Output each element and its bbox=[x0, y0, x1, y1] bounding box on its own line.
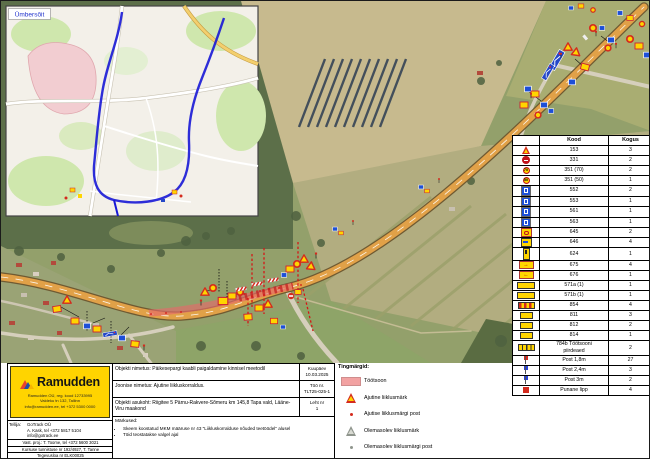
panel-icon bbox=[517, 292, 535, 299]
stripe-ry-icon bbox=[518, 302, 535, 309]
sign-table-row: 6241 bbox=[513, 248, 650, 261]
sign-icon-cell bbox=[513, 248, 540, 261]
sign-code: 563 bbox=[540, 217, 609, 228]
sign-table-row: Post 3m2 bbox=[513, 376, 650, 386]
sign-qty: 4 bbox=[609, 238, 650, 248]
blue-icon bbox=[521, 207, 531, 217]
sign-code: Punane lipp bbox=[540, 386, 609, 396]
sign-icon-header bbox=[513, 136, 540, 146]
sign-qty: 1 bbox=[609, 217, 650, 228]
company-address-line: info@ramudden.ee, tel +372 5300 0000 bbox=[25, 404, 96, 409]
sign-qty: 2 bbox=[609, 228, 650, 238]
sign-icon-cell bbox=[513, 207, 540, 218]
sign-code: 561 bbox=[540, 207, 609, 218]
company-address: Ramudden OÜ, reg. kood 12733995Valdeku t… bbox=[25, 393, 96, 409]
notes-list: Skeem koostatud MKM määruse nr 43 "Liikl… bbox=[123, 426, 332, 438]
sign-icon-cell bbox=[513, 186, 540, 197]
sign-qty: 3 bbox=[609, 311, 650, 321]
notes-cell: Märkused: Skeem koostatud MKM määruse nr… bbox=[113, 417, 334, 458]
sign-table-row: 5522 bbox=[513, 186, 650, 197]
existing-post-swatch bbox=[350, 446, 353, 449]
sign-code: 675 bbox=[540, 261, 609, 271]
sign-code: 646 bbox=[540, 238, 609, 248]
ring-icon: 70 bbox=[523, 167, 530, 174]
sign-table-row: 8544 bbox=[513, 301, 650, 311]
sign-code: 645 bbox=[540, 228, 609, 238]
sign-icon-cell bbox=[513, 331, 540, 341]
blue-icon bbox=[521, 197, 531, 207]
sign-qty: 1 bbox=[609, 248, 650, 261]
ta-plan-sheet: Ümbersõit Kood Kogus 1533331270351 (70)2… bbox=[0, 0, 650, 459]
al-icon: ← bbox=[519, 271, 534, 279]
sign-table: Kood Kogus 1533331270351 (70)250351 (50)… bbox=[512, 135, 650, 396]
note-item: Töid teostatakse valgel ajal bbox=[123, 432, 332, 438]
sign-qty: 4 bbox=[609, 386, 650, 396]
sign-code: 351 (70) bbox=[540, 166, 609, 176]
yc-icon bbox=[521, 228, 532, 237]
work-no-value: TLT25-025-1 bbox=[300, 389, 334, 395]
work-no-cell: Töö nr. TLT25-025-1 bbox=[299, 381, 334, 398]
sign-icon-cell bbox=[513, 321, 540, 331]
legend-label: Olemasolev liiklusmärk bbox=[364, 428, 419, 434]
client-lines: GoTrack OÜA. Kask, tel +372 5817 5104inf… bbox=[27, 421, 113, 439]
blue-icon bbox=[521, 186, 531, 196]
sign-table-row: 6464 bbox=[513, 238, 650, 248]
sign-qty: 1 bbox=[609, 176, 650, 186]
sign-qty: 1 bbox=[609, 291, 650, 301]
legend-item: Ajutise liiklusmärgi post bbox=[338, 406, 533, 423]
plate-icon bbox=[520, 312, 533, 319]
sign-table-row: Post 1,8m27 bbox=[513, 356, 650, 366]
sign-code: 552 bbox=[540, 186, 609, 197]
date-value: 10.03.2025 bbox=[300, 372, 334, 378]
temp-post-swatch bbox=[350, 413, 353, 416]
sign-table-row: 70351 (70)2 bbox=[513, 166, 650, 176]
sign-table-row: 50351 (50)1 bbox=[513, 176, 650, 186]
sign-qty: 2 bbox=[609, 166, 650, 176]
legend-label: Ajutise liiklusmärgi post bbox=[364, 411, 420, 417]
sign-code: 814 bbox=[540, 331, 609, 341]
sign-icon-cell bbox=[513, 281, 540, 291]
license-line: Tegevusloa nr ELK00025 bbox=[8, 452, 113, 459]
client-line: info@gotrack.ee bbox=[27, 433, 113, 439]
sign-table-row: →6754 bbox=[513, 261, 650, 271]
legend-label: Töötsoon bbox=[364, 378, 386, 384]
noentry-icon bbox=[522, 156, 530, 164]
sign-icon-cell: 70 bbox=[513, 166, 540, 176]
date-cell: Kuupäev 10.03.2025 bbox=[299, 364, 334, 381]
legend-items: TöötsoonAjutine liiklusmärkAjutise liikl… bbox=[338, 373, 533, 456]
sign-qty: 2 bbox=[609, 376, 650, 386]
sign-code: 571b (1) bbox=[540, 291, 609, 301]
yr-icon bbox=[521, 238, 532, 247]
sign-qty: 2 bbox=[609, 321, 650, 331]
legend-swatch-cell bbox=[338, 426, 364, 436]
sign-qty: 4 bbox=[609, 261, 650, 271]
sign-icon-cell bbox=[513, 196, 540, 207]
legend-swatch-cell bbox=[338, 377, 364, 386]
plate-icon bbox=[520, 332, 533, 339]
sign-table-row: Post 2,4m3 bbox=[513, 366, 650, 376]
legend-label: Ajutine liiklusmärk bbox=[364, 395, 407, 401]
sign-table-row: 8122 bbox=[513, 321, 650, 331]
sheet-no-value: 1 bbox=[300, 406, 334, 412]
sign-code: 812 bbox=[540, 321, 609, 331]
location-cell: Objekti asukoht: Riigitee 5 Pärnu-Rakver… bbox=[113, 398, 299, 417]
sheet-no-cell: Leht nr 1 bbox=[299, 398, 334, 417]
sign-table-row: 1533 bbox=[513, 146, 650, 156]
sign-qty: 2 bbox=[609, 156, 650, 166]
sign-icon-cell bbox=[513, 291, 540, 301]
sign-code: Post 1,8m bbox=[540, 356, 609, 366]
stripe-yb-icon bbox=[518, 344, 535, 351]
sign-table-row: Punane lipp4 bbox=[513, 386, 650, 396]
legend-swatch-cell bbox=[338, 393, 364, 403]
sign-code: 624 bbox=[540, 248, 609, 261]
legend-swatch-cell bbox=[338, 446, 364, 449]
sign-code: Post 2,4m bbox=[540, 366, 609, 376]
sign-icon-cell: 50 bbox=[513, 176, 540, 186]
drawing-name-cell: Joonise nimetus: Ajutine liikluskorraldu… bbox=[113, 381, 299, 398]
sign-qty: 2 bbox=[609, 341, 650, 356]
sign-qty: 27 bbox=[609, 356, 650, 366]
sign-qty: 3 bbox=[609, 146, 650, 156]
sign-qty: 1 bbox=[609, 331, 650, 341]
sign-table-row: 8141 bbox=[513, 331, 650, 341]
sign-icon-cell: ← bbox=[513, 271, 540, 281]
sign-code: 553 bbox=[540, 196, 609, 207]
sign-qty: 4 bbox=[609, 301, 650, 311]
workzone-swatch bbox=[341, 377, 361, 386]
tall-icon bbox=[523, 248, 530, 260]
sign-qty: 1 bbox=[609, 207, 650, 218]
panel-icon bbox=[517, 282, 535, 289]
client-row: Tellija: GoTrack OÜA. Kask, tel +372 581… bbox=[8, 420, 113, 439]
sign-table-row: 571a (1)1 bbox=[513, 281, 650, 291]
sign-qty: 3 bbox=[609, 366, 650, 376]
sign-qty: 1 bbox=[609, 196, 650, 207]
sign-table-body: 1533331270351 (70)250351 (50)15522553156… bbox=[513, 146, 650, 396]
ramudden-logo-box: Ramudden Ramudden OÜ, reg. kood 12733995… bbox=[10, 366, 110, 418]
client-label: Tellija: bbox=[8, 421, 27, 439]
inset-detour-label: Ümbersõit bbox=[15, 11, 45, 19]
sign-icon-cell bbox=[513, 146, 540, 156]
legend-item: Olemasolev liiklusmärk bbox=[338, 423, 533, 440]
sign-icon-cell bbox=[513, 238, 540, 248]
ramudden-logo: Ramudden bbox=[20, 375, 100, 389]
sign-table-header-row: Kood Kogus bbox=[513, 136, 650, 146]
sign-code-header: Kood bbox=[540, 136, 609, 146]
inset-map: Ümbersõit bbox=[6, 6, 266, 216]
legend-item: Töötsoon bbox=[338, 373, 533, 390]
sign-code: 331 bbox=[540, 156, 609, 166]
sign-table-row: 8113 bbox=[513, 311, 650, 321]
sign-table-row: 571b (1)1 bbox=[513, 291, 650, 301]
sign-icon-cell bbox=[513, 311, 540, 321]
sign-code: 676 bbox=[540, 271, 609, 281]
legend-label: Olemasolev liiklusmärgi post bbox=[364, 444, 432, 450]
sign-icon-cell bbox=[513, 341, 540, 356]
plate-icon bbox=[520, 322, 533, 329]
sign-table-row: 5611 bbox=[513, 207, 650, 218]
sign-code: 153 bbox=[540, 146, 609, 156]
legend-title: Tingmärgid: bbox=[338, 364, 533, 370]
sign-table-row: 6452 bbox=[513, 228, 650, 238]
legend-swatch-cell bbox=[338, 413, 364, 416]
sign-code: 811 bbox=[540, 311, 609, 321]
sign-code: 854 bbox=[540, 301, 609, 311]
sign-code: 784b Töötsooni piirdeaed bbox=[540, 341, 609, 356]
map-legend: Tingmärgid: TöötsoonAjutine liiklusmärkA… bbox=[338, 364, 533, 456]
existing-sign-swatch bbox=[346, 426, 356, 436]
sign-icon-cell: → bbox=[513, 261, 540, 271]
legend-item: Olemasolev liiklusmärgi post bbox=[338, 439, 533, 456]
sign-table-row: 5631 bbox=[513, 217, 650, 228]
sign-table-row: ←6761 bbox=[513, 271, 650, 281]
blue-icon bbox=[521, 218, 531, 228]
company-name: Ramudden bbox=[37, 375, 100, 389]
title-block: Ramudden Ramudden OÜ, reg. kood 12733995… bbox=[7, 363, 335, 459]
sign-code: 351 (50) bbox=[540, 176, 609, 186]
sign-table-row: 784b Töötsooni piirdeaed2 bbox=[513, 341, 650, 356]
sign-qty-header: Kogus bbox=[609, 136, 650, 146]
notes-title: Märkused: bbox=[115, 419, 332, 425]
object-name-cell: Objekti nimetus: Päikesepargi kaabli pai… bbox=[113, 364, 299, 381]
warn-icon bbox=[522, 146, 530, 154]
temp-sign-swatch bbox=[346, 393, 356, 403]
sign-icon-cell bbox=[513, 228, 540, 238]
ring-icon: 50 bbox=[523, 177, 530, 184]
sign-table-row: 3312 bbox=[513, 156, 650, 166]
sign-qty: 1 bbox=[609, 271, 650, 281]
legend-item: Ajutine liiklusmärk bbox=[338, 390, 533, 407]
logo-triangle-yellow bbox=[28, 384, 34, 389]
sign-code: 571a (1) bbox=[540, 281, 609, 291]
sign-icon-cell bbox=[513, 301, 540, 311]
sign-qty: 1 bbox=[609, 281, 650, 291]
ar-icon: → bbox=[519, 261, 534, 269]
sign-table-row: 5531 bbox=[513, 196, 650, 207]
sign-icon-cell bbox=[513, 217, 540, 228]
sign-qty: 2 bbox=[609, 186, 650, 197]
sign-icon-cell bbox=[513, 156, 540, 166]
sign-code: Post 3m bbox=[540, 376, 609, 386]
